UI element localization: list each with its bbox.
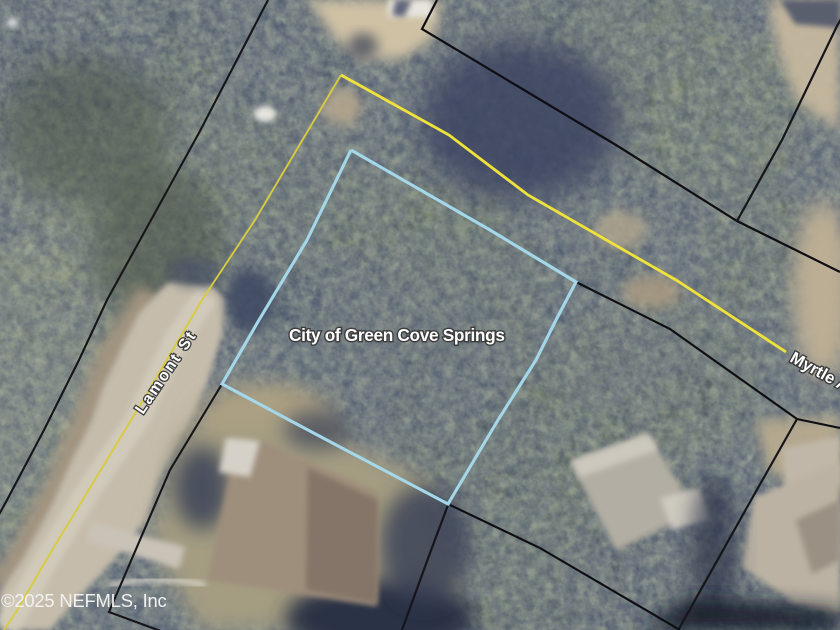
svg-text:City of Green Cove Springs: City of Green Cove Springs — [289, 325, 505, 345]
svg-text:©2025 NEFMLS, Inc: ©2025 NEFMLS, Inc — [1, 590, 167, 611]
